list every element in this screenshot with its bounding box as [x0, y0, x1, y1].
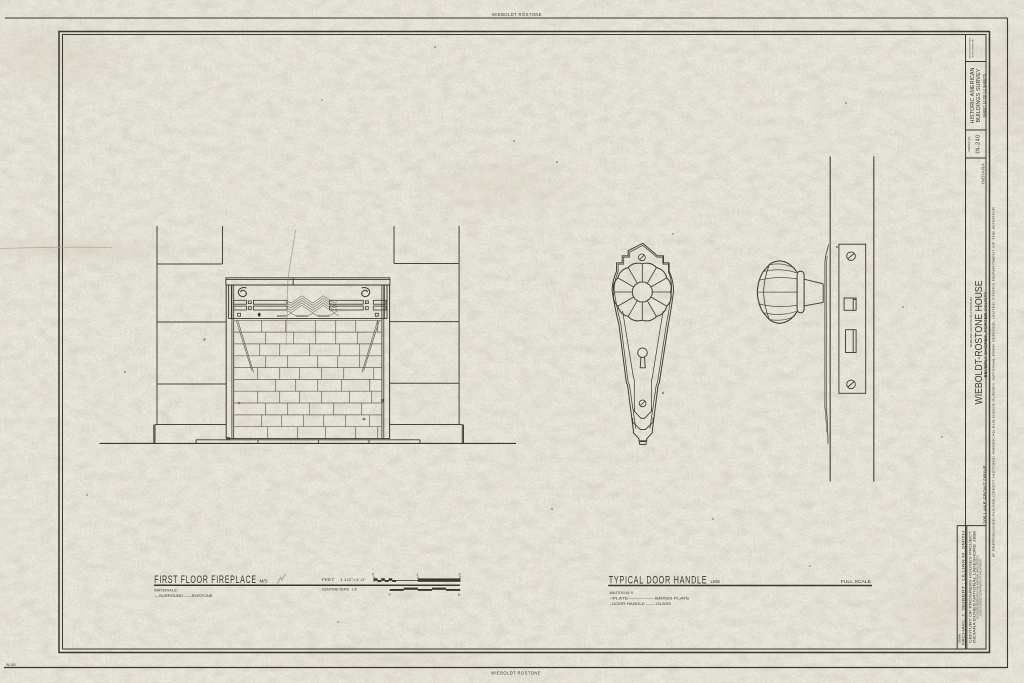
svg-text:BEVERLY SHORES IND.: BEVERLY SHORES IND. — [973, 38, 975, 57]
svg-text:IN-240: IN-240 — [6, 663, 16, 667]
svg-text:HISTORIC AMERICAN: HISTORIC AMERICAN — [970, 67, 976, 123]
svg-text:NAME AND LOCATION OF STRUCTURE: NAME AND LOCATION OF STRUCTURE — [970, 297, 973, 347]
svg-text:M/S: M/S — [260, 579, 268, 584]
svg-text:IN-240: IN-240 — [975, 134, 981, 153]
svg-text:5: 5 — [458, 593, 460, 597]
svg-text:–DOOR HANDLE —— GLASS: –DOOR HANDLE —— GLASS — [610, 602, 672, 606]
svg-text:FEET 1 1/2"=1'-0": FEET 1 1/2"=1'-0" — [322, 578, 367, 582]
svg-text:BUILDINGS SURVEY: BUILDINGS SURVEY — [976, 68, 982, 122]
svg-text:MATERIALS: MATERIALS — [610, 591, 634, 595]
svg-text:SURVEY NO.: SURVEY NO. — [967, 136, 971, 152]
svg-text:INDIANA: INDIANA — [981, 163, 986, 184]
svg-text:–PLATE————— BRASS PLATE: –PLATE————— BRASS PLATE — [610, 596, 691, 600]
svg-text:CENTIMETERS 1:8: CENTIMETERS 1:8 — [322, 588, 357, 592]
svg-text:SHEET 10 OF 12 SHEETS: SHEET 10 OF 12 SHEETS — [982, 73, 986, 118]
svg-text:TYPICAL DOOR HANDLE: TYPICAL DOOR HANDLE — [609, 574, 708, 586]
svg-text:WIEBOLDT-ROSTONE HOUSE: WIEBOLDT-ROSTONE HOUSE — [970, 37, 972, 58]
svg-text:UNITED STATES DEPARTMENT OF TH: UNITED STATES DEPARTMENT OF THE INTERIOR — [979, 558, 982, 615]
svg-text:0: 0 — [372, 573, 374, 577]
svg-text:WIEBOLDT ROSTONE: WIEBOLDT ROSTONE — [492, 12, 542, 17]
svg-text:—SURROUND——ROSTONE: —SURROUND——ROSTONE — [155, 594, 214, 598]
svg-text:3: 3 — [459, 573, 461, 577]
svg-text:1: 1 — [416, 573, 418, 577]
svg-text:MICHAEL J. SEIBERT ; LILLIAN M: MICHAEL J. SEIBERT ; LILLIAN M. SMITH — [961, 530, 965, 645]
svg-text:FULL SCALE: FULL SCALE — [841, 579, 872, 585]
svg-text:MATERIALS:: MATERIALS: — [155, 588, 178, 592]
svg-text:IF REPRODUCED PLEASE CREDIT HI: IF REPRODUCED PLEASE CREDIT HISTORIC AME… — [991, 207, 995, 557]
svg-text:0: 0 — [389, 593, 391, 597]
svg-text:LMS: LMS — [711, 579, 720, 584]
svg-text:BEVERLY SHORES, PORTER COUNTY: BEVERLY SHORES, PORTER COUNTY — [983, 291, 988, 377]
svg-text:205 LAKE FRONT DRIVE: 205 LAKE FRONT DRIVE — [982, 465, 987, 524]
svg-text:FIRST FLOOR FIREPLACE: FIRST FLOOR FIREPLACE — [154, 574, 256, 586]
svg-text:WIEBOLDT ROSTONE: WIEBOLDT ROSTONE — [491, 671, 541, 676]
